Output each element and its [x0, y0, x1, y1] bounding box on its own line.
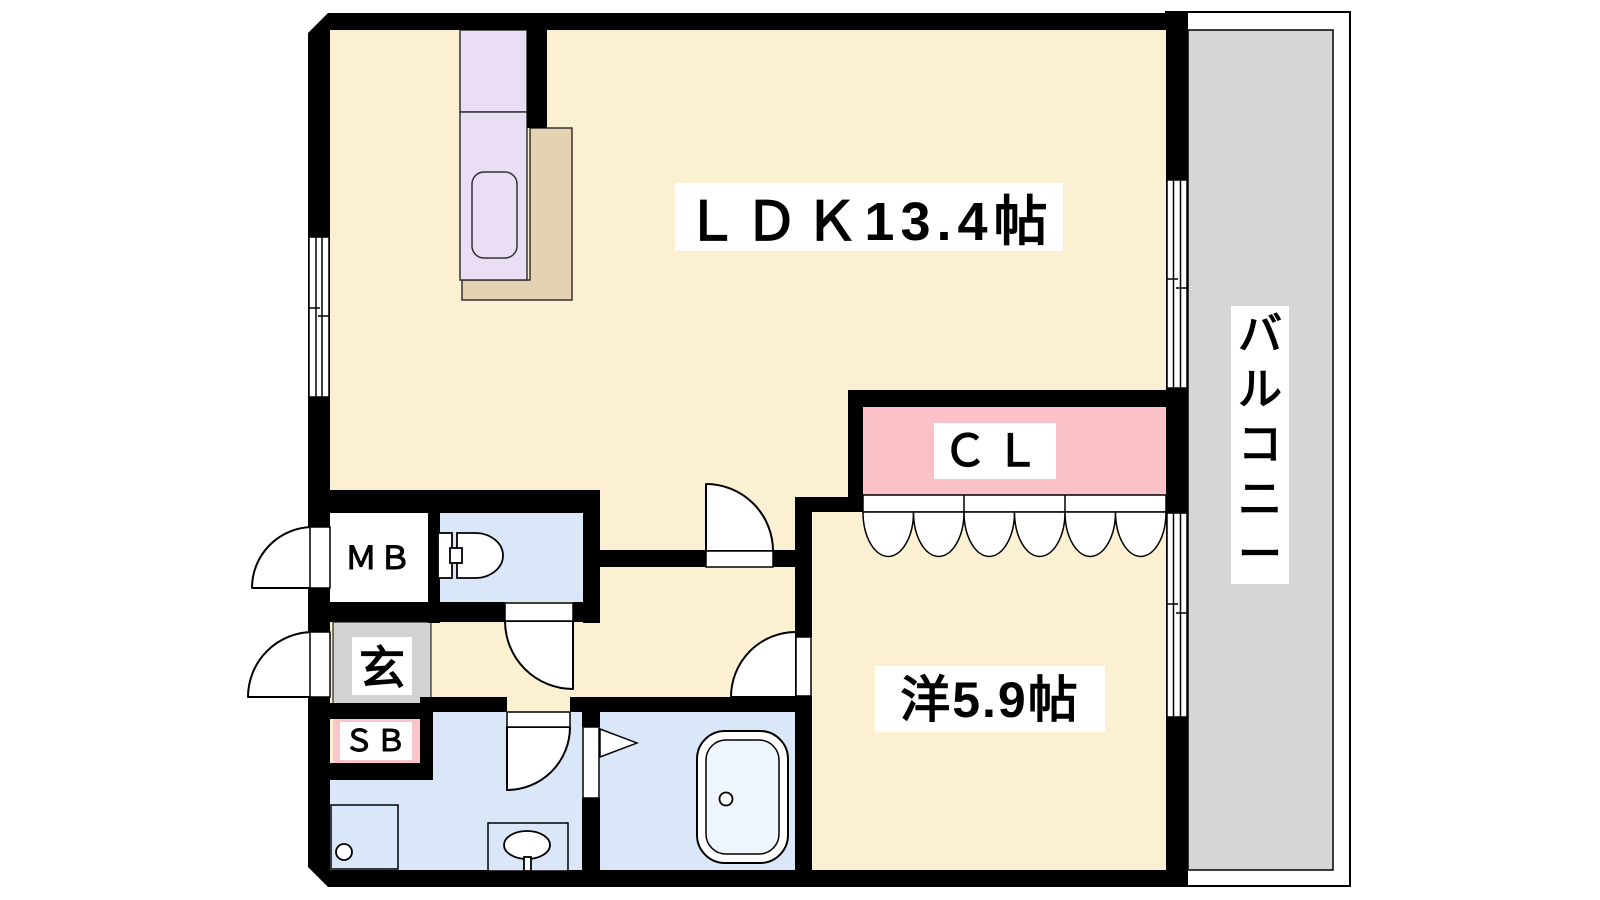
window-western-balcony — [1167, 513, 1187, 717]
balcony-label-char-1: バ — [1238, 310, 1282, 359]
window-ldk-balcony — [1167, 180, 1187, 388]
meter-box-label: ＭＢ — [345, 540, 413, 576]
door-meter-box — [252, 527, 330, 588]
balcony-label: バ ル コ ニ ー — [1231, 306, 1289, 584]
western-room-label: 洋5.9帖 — [900, 672, 1080, 728]
washing-machine-pan — [331, 805, 398, 869]
basin — [504, 831, 550, 859]
entrance-label: 玄 — [359, 642, 405, 694]
kitchen-sink — [472, 172, 517, 258]
floor-plan-drawing: ＬＤＫ13.4帖 洋5.9帖 ＣＬ ＭＢ 玄 ＳＢ バ ル コ ニ ー — [0, 0, 1600, 900]
balcony-label-char-3: コ — [1238, 420, 1282, 469]
door-entrance — [248, 632, 330, 697]
vanity-sink — [488, 823, 568, 871]
refrigerator-space — [460, 30, 527, 112]
drain-circle — [336, 844, 352, 860]
tub-drain-circle — [720, 793, 733, 806]
balcony-label-char-5: ー — [1238, 530, 1282, 579]
floor-plan-page: ＬＤＫ13.4帖 洋5.9帖 ＣＬ ＭＢ 玄 ＳＢ バ ル コ ニ ー — [0, 0, 1600, 900]
balcony-label-char-2: ル — [1238, 365, 1282, 414]
closet-label: ＣＬ — [943, 427, 1047, 476]
toilet-fixture — [438, 533, 503, 578]
ldk-label: ＬＤＫ13.4帖 — [684, 192, 1053, 252]
window-ldk-left — [309, 237, 329, 397]
shoe-box-label: ＳＢ — [344, 725, 408, 758]
faucet — [524, 857, 531, 871]
bathtub — [697, 731, 788, 863]
balcony-label-char-4: ニ — [1238, 475, 1282, 524]
